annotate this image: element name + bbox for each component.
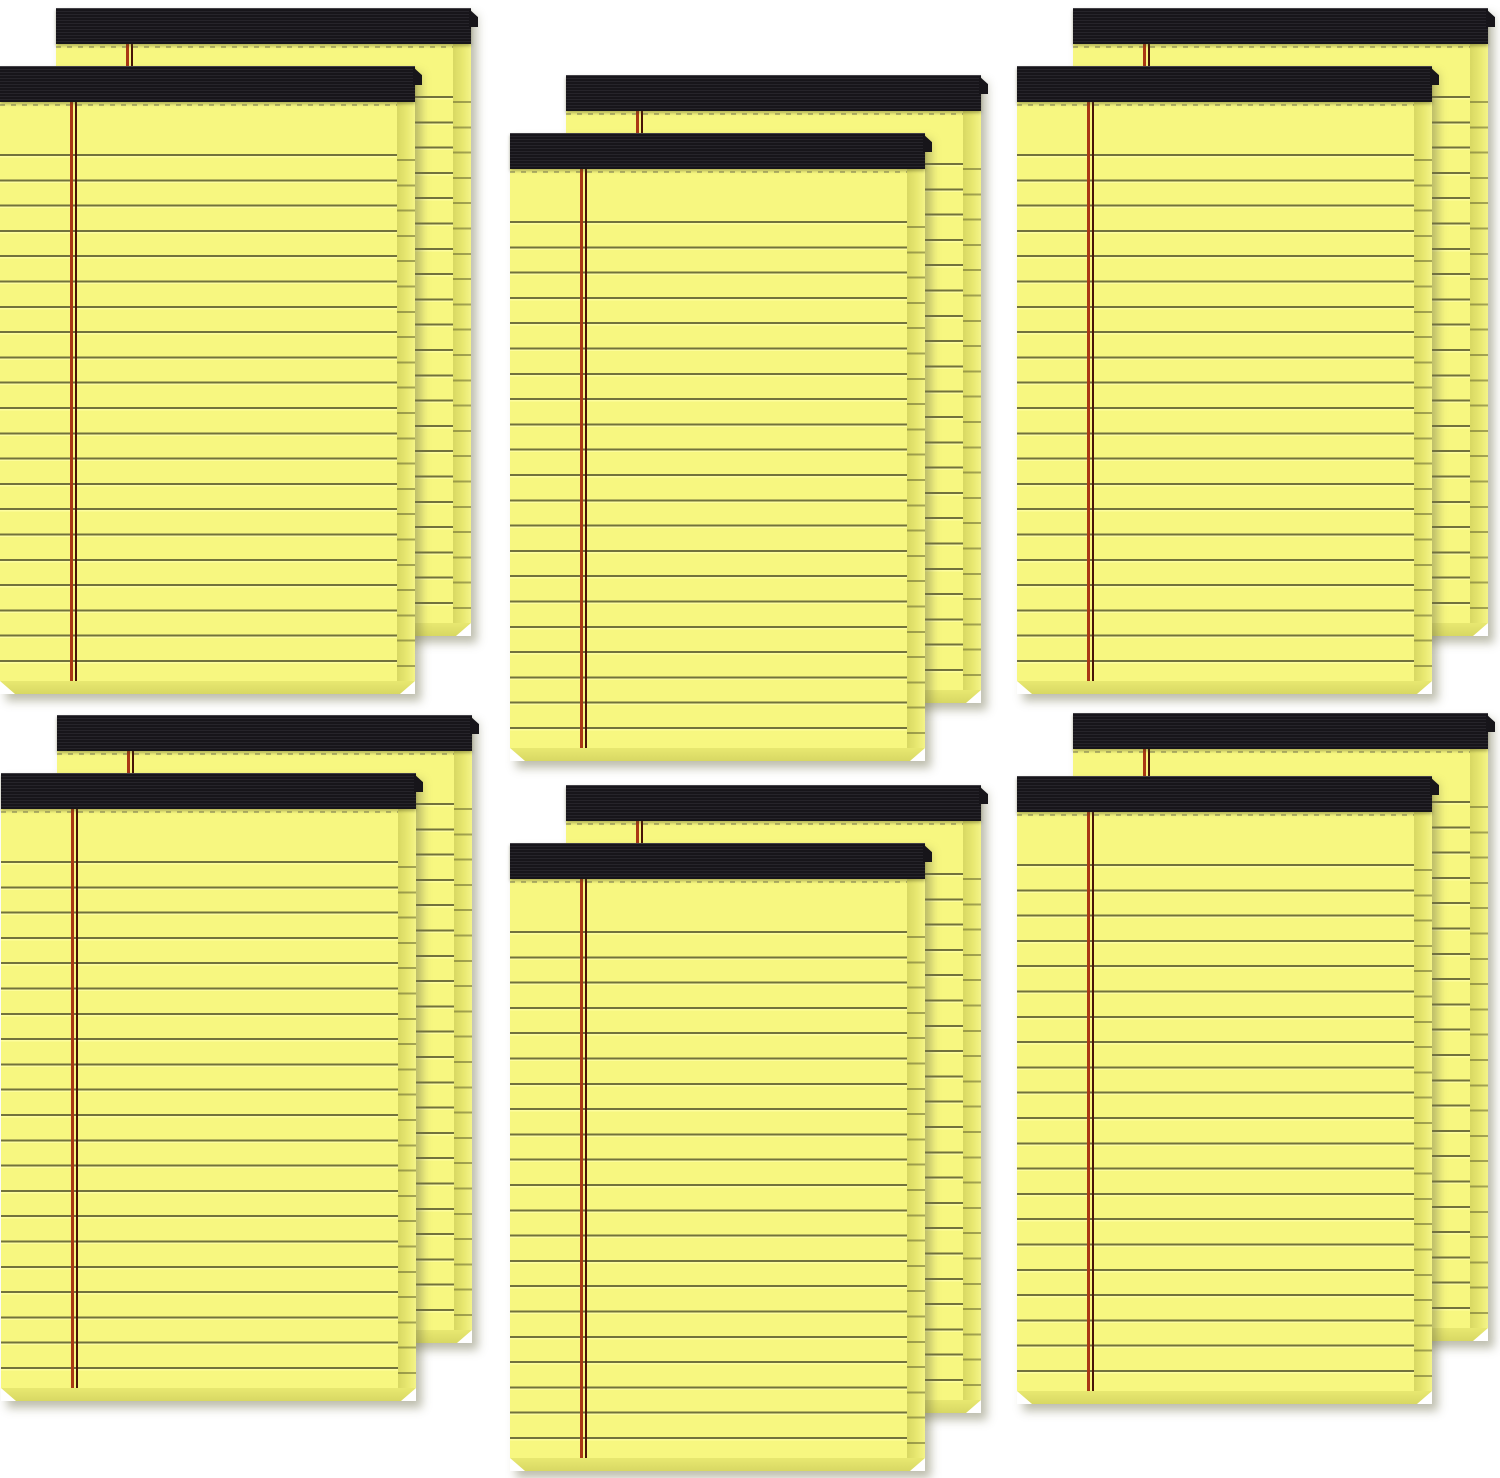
page-stack-edge-rule-lines — [453, 101, 471, 623]
paper-face — [510, 879, 907, 1458]
perforation-dotted-line — [510, 881, 907, 883]
page-stack-bottom-edge — [0, 681, 415, 694]
perforation-dotted-line — [57, 753, 454, 755]
legal-pad-top-right-front — [1017, 66, 1432, 694]
perforation-dotted-line — [0, 104, 397, 106]
legal-pad-top-center-front — [510, 133, 925, 761]
page-stack-right-edge — [962, 821, 981, 1400]
binding-strip — [57, 715, 472, 751]
page-stack-edge-rule-lines — [398, 866, 416, 1388]
perforation-dotted-line — [1073, 751, 1470, 753]
page-stack-right-edge — [906, 879, 925, 1458]
margin-line-outer — [580, 879, 583, 1458]
page-stack-right-edge — [452, 44, 471, 623]
page-stack-right-edge — [453, 751, 472, 1330]
margin-line-inner — [585, 169, 587, 748]
binding-strip — [1, 773, 416, 809]
page-stack-bottom-edge — [510, 748, 925, 761]
paper-face — [1017, 812, 1414, 1391]
perforation-dotted-line — [1017, 104, 1414, 106]
paper-face — [1, 809, 398, 1388]
page-stack-edge-rule-lines — [907, 936, 925, 1458]
page-stack-edge-rule-lines — [1414, 869, 1432, 1391]
ruled-lines — [510, 221, 907, 748]
page-stack-right-edge — [1413, 812, 1432, 1391]
binding-strip — [566, 785, 981, 821]
perforation-dotted-line — [566, 113, 963, 115]
ruled-lines — [0, 154, 397, 681]
binding-right-fold — [470, 716, 479, 734]
ruled-lines — [1017, 154, 1414, 681]
perforation-dotted-line — [1, 811, 398, 813]
page-stack-edge-rule-lines — [1470, 806, 1488, 1328]
page-stack-edge-rule-lines — [963, 878, 981, 1400]
perforation-dotted-line — [1073, 46, 1470, 48]
page-stack-right-edge — [1413, 102, 1432, 681]
page-stack-edge-rule-lines — [1414, 159, 1432, 681]
binding-right-fold — [979, 786, 988, 804]
perforation-dotted-line — [510, 171, 907, 173]
paper-face — [0, 102, 397, 681]
binding-right-fold — [1486, 714, 1495, 732]
binding-strip — [510, 133, 925, 169]
ruled-lines — [510, 931, 907, 1458]
page-stack-right-edge — [397, 809, 416, 1388]
margin-line-inner — [1092, 102, 1094, 681]
margin-line-inner — [75, 102, 77, 681]
page-stack-edge-rule-lines — [907, 226, 925, 748]
page-stack-right-edge — [962, 111, 981, 690]
binding-strip — [1017, 776, 1432, 812]
binding-right-fold — [469, 9, 478, 27]
page-stack-edge-rule-lines — [454, 808, 472, 1330]
margin-line-outer — [71, 809, 74, 1388]
ruled-lines — [1017, 864, 1414, 1391]
binding-strip — [1073, 713, 1488, 749]
margin-line-inner — [1092, 812, 1094, 1391]
page-stack-bottom-edge — [510, 1458, 925, 1471]
page-stack-edge-rule-lines — [1470, 101, 1488, 623]
binding-right-fold — [979, 76, 988, 94]
page-stack-edge-rule-lines — [397, 159, 415, 681]
page-stack-right-edge — [1469, 749, 1488, 1328]
margin-line-inner — [76, 809, 78, 1388]
binding-strip — [0, 66, 415, 102]
margin-line-outer — [1087, 102, 1090, 681]
page-stack-edge-rule-lines — [963, 168, 981, 690]
margin-line-outer — [580, 169, 583, 748]
binding-strip — [566, 75, 981, 111]
binding-strip — [510, 843, 925, 879]
legal-pad-top-left-front — [0, 66, 415, 694]
legal-pad-bottom-center-front — [510, 843, 925, 1471]
ruled-lines — [1, 861, 398, 1388]
margin-line-inner — [585, 879, 587, 1458]
legal-pad-bottom-left-front — [1, 773, 416, 1401]
pads-canvas — [0, 0, 1500, 1478]
page-stack-right-edge — [1469, 44, 1488, 623]
legal-pad-bottom-right-front — [1017, 776, 1432, 1404]
binding-strip — [56, 8, 471, 44]
page-stack-bottom-edge — [1, 1388, 416, 1401]
binding-strip — [1073, 8, 1488, 44]
page-stack-bottom-edge — [1017, 1391, 1432, 1404]
perforation-dotted-line — [56, 46, 453, 48]
perforation-dotted-line — [1017, 814, 1414, 816]
margin-line-outer — [70, 102, 73, 681]
binding-strip — [1017, 66, 1432, 102]
page-stack-right-edge — [906, 169, 925, 748]
perforation-dotted-line — [566, 823, 963, 825]
margin-line-outer — [1087, 812, 1090, 1391]
binding-right-fold — [1486, 9, 1495, 27]
paper-face — [1017, 102, 1414, 681]
page-stack-right-edge — [396, 102, 415, 681]
page-stack-bottom-edge — [1017, 681, 1432, 694]
paper-face — [510, 169, 907, 748]
